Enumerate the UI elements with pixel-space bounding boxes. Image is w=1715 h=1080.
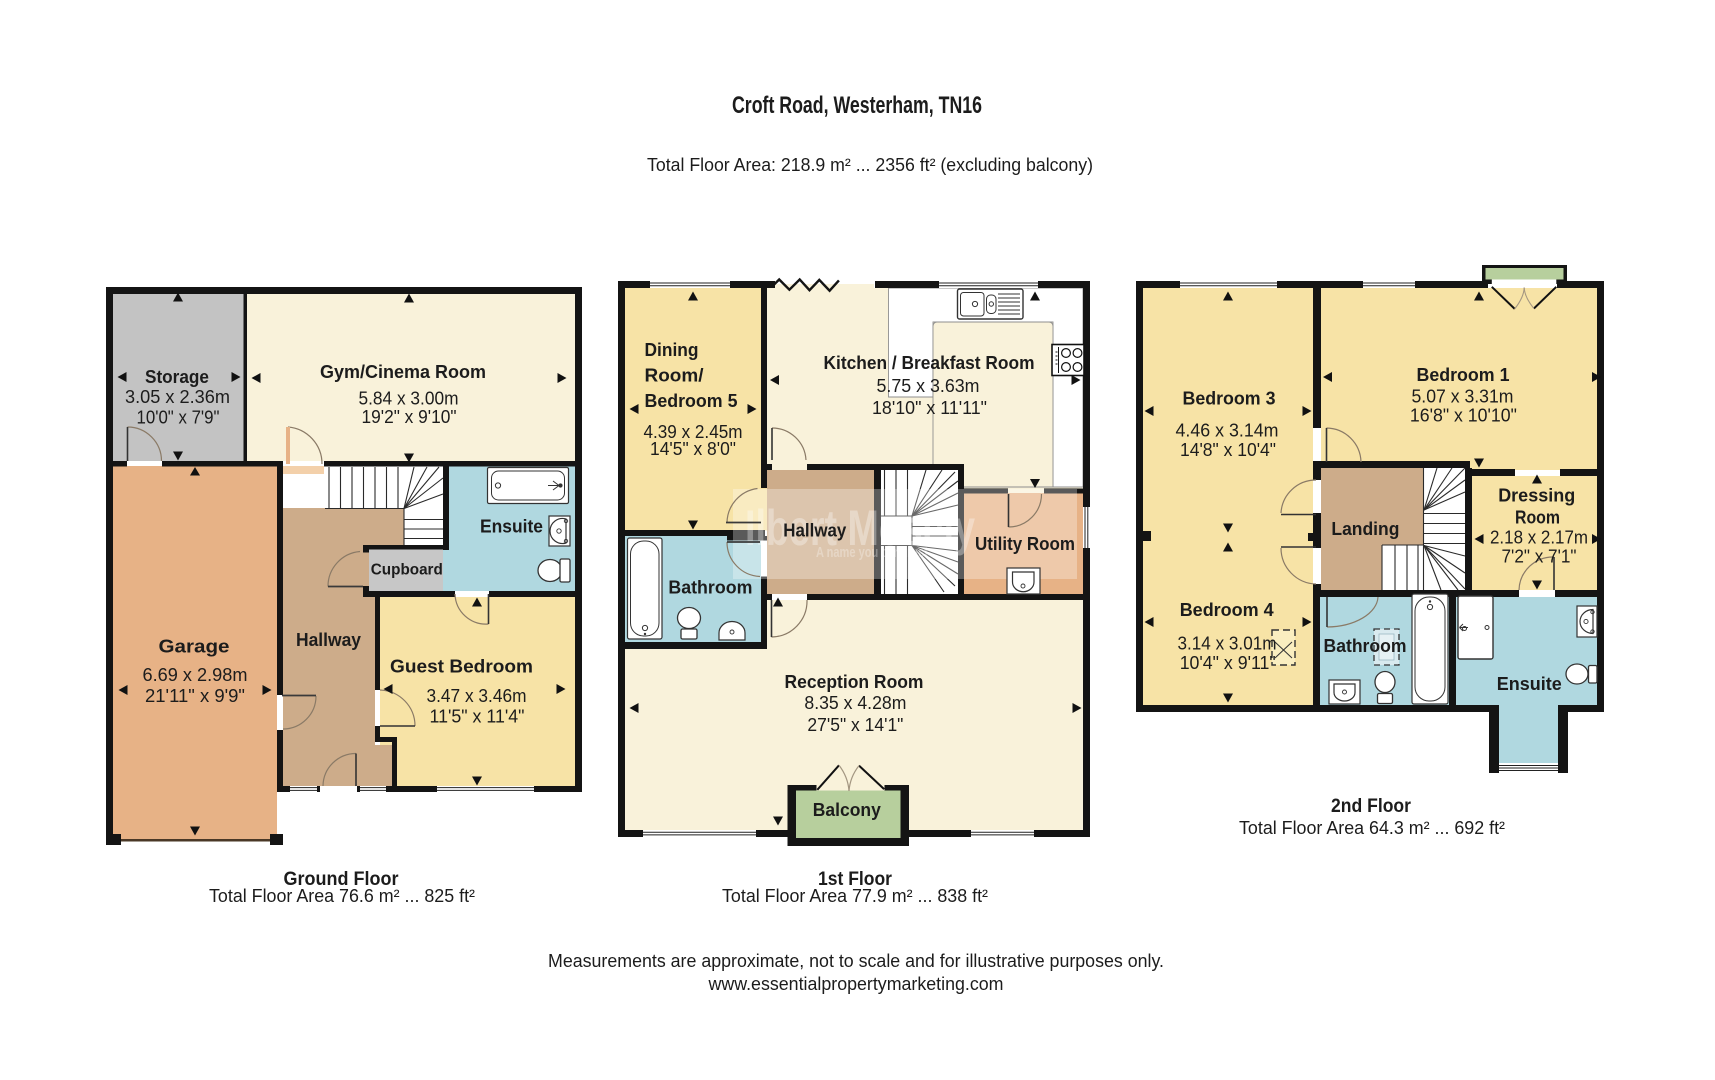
svg-text:3.14 x 3.01m: 3.14 x 3.01m	[1178, 633, 1277, 653]
svg-text:4.46 x 3.14m: 4.46 x 3.14m	[1176, 421, 1279, 441]
svg-text:Hallway: Hallway	[296, 630, 361, 650]
svg-text:14'5" x 8'0": 14'5" x 8'0"	[650, 439, 736, 459]
svg-text:Garage: Garage	[159, 637, 230, 657]
svg-text:Room: Room	[1515, 507, 1560, 527]
svg-text:Reception Room: Reception Room	[785, 672, 924, 692]
svg-text:Bathroom: Bathroom	[668, 578, 752, 598]
svg-text:Bedroom 1: Bedroom 1	[1417, 365, 1510, 385]
svg-text:Total Floor Area 77.9 m² ... 8: Total Floor Area 77.9 m² ... 838 ft²	[722, 886, 988, 906]
svg-text:Cupboard: Cupboard	[371, 562, 443, 579]
svg-text:Bedroom 3: Bedroom 3	[1183, 389, 1276, 409]
svg-text:2.18 x 2.17m: 2.18 x 2.17m	[1490, 527, 1588, 547]
svg-text:www.essentialpropertymarketing: www.essentialpropertymarketing.com	[708, 974, 1004, 994]
svg-text:2nd Floor: 2nd Floor	[1331, 796, 1412, 817]
svg-text:Ensuite: Ensuite	[1497, 674, 1562, 694]
svg-text:6.69 x 2.98m: 6.69 x 2.98m	[143, 665, 248, 685]
svg-text:Utility Room: Utility Room	[975, 534, 1075, 554]
svg-text:3.05 x 2.36m: 3.05 x 2.36m	[125, 387, 230, 407]
svg-text:Storage: Storage	[145, 367, 209, 387]
svg-text:Gym/Cinema Room: Gym/Cinema Room	[320, 362, 486, 382]
svg-text:21'11" x 9'9": 21'11" x 9'9"	[145, 686, 245, 706]
svg-text:5.07 x 3.31m: 5.07 x 3.31m	[1412, 387, 1514, 407]
svg-text:Kitchen / Breakfast Room: Kitchen / Breakfast Room	[824, 353, 1035, 373]
svg-text:Total Floor Area 76.6 m² ... 8: Total Floor Area 76.6 m² ... 825 ft²	[209, 886, 475, 906]
svg-text:10'0" x 7'9": 10'0" x 7'9"	[137, 408, 220, 428]
svg-text:7'2" x 7'1": 7'2" x 7'1"	[1502, 547, 1577, 567]
svg-text:Total Floor Area 64.3 m² ... 6: Total Floor Area 64.3 m² ... 692 ft²	[1239, 818, 1505, 838]
svg-text:Dressing: Dressing	[1498, 486, 1575, 506]
svg-text:Dining: Dining	[645, 340, 699, 360]
svg-text:14'8" x 10'4": 14'8" x 10'4"	[1180, 440, 1276, 460]
svg-text:Ensuite: Ensuite	[480, 517, 543, 537]
svg-text:Bedroom 5: Bedroom 5	[645, 391, 738, 411]
svg-text:11'5" x 11'4": 11'5" x 11'4"	[430, 707, 525, 727]
svg-text:5.84 x 3.00m: 5.84 x 3.00m	[359, 389, 459, 409]
svg-text:18'10" x 11'11": 18'10" x 11'11"	[872, 398, 987, 418]
svg-text:Balcony: Balcony	[813, 800, 881, 820]
svg-text:Measurements are approximate,: Measurements are approximate, not to sca…	[548, 951, 1164, 971]
svg-text:16'8" x 10'10": 16'8" x 10'10"	[1410, 406, 1517, 426]
svg-text:Total Floor Area: 218.9 m² ...: Total Floor Area: 218.9 m² ... 2356 ft² …	[647, 155, 1093, 175]
svg-text:27'5" x 14'1": 27'5" x 14'1"	[807, 715, 903, 735]
svg-text:Bedroom 4: Bedroom 4	[1180, 600, 1274, 620]
svg-text:19'2" x 9'10": 19'2" x 9'10"	[362, 407, 457, 427]
svg-text:A name you can trust: A name you can trust	[816, 544, 928, 561]
svg-text:Landing: Landing	[1331, 519, 1399, 539]
svg-text:Hallway: Hallway	[783, 521, 846, 541]
svg-text:8.35 x 4.28m: 8.35 x 4.28m	[804, 693, 906, 713]
svg-text:Guest Bedroom: Guest Bedroom	[390, 657, 533, 677]
svg-text:10'4" x 9'11": 10'4" x 9'11"	[1180, 653, 1276, 673]
svg-text:3.47 x 3.46m: 3.47 x 3.46m	[427, 686, 527, 706]
svg-text:5.75 x 3.63m: 5.75 x 3.63m	[877, 376, 980, 396]
svg-text:Bathroom: Bathroom	[1324, 636, 1407, 656]
svg-text:Room/: Room/	[645, 366, 704, 386]
svg-text:Croft Road, Westerham, TN16: Croft Road, Westerham, TN16	[732, 92, 982, 119]
